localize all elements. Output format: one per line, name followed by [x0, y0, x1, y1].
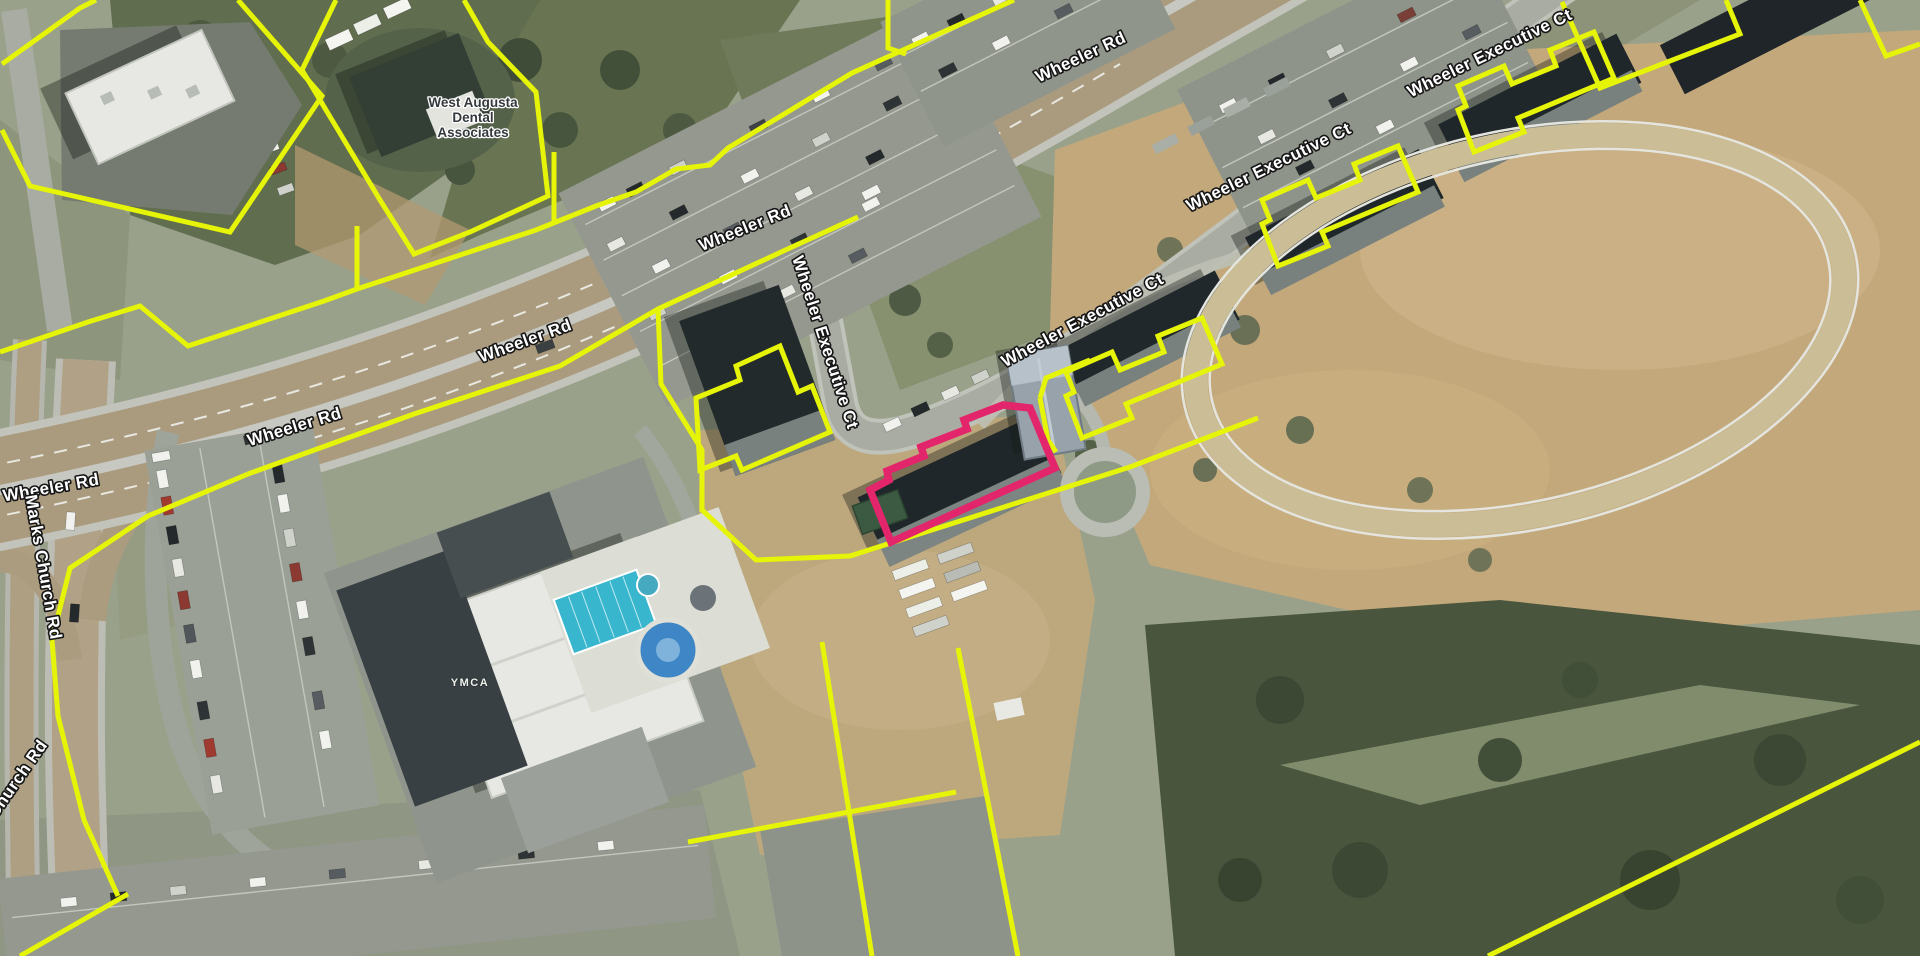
poi-label-dental-line2: Dental: [452, 110, 493, 125]
poi-label-ymca: YMCA: [451, 677, 489, 689]
map-stage[interactable]: Wheeler RdWheeler RdWheeler RdWheeler Rd…: [0, 0, 1920, 956]
poi-label-dental-line1: West Augusta: [428, 95, 518, 110]
map-canvas[interactable]: Wheeler RdWheeler RdWheeler RdWheeler Rd…: [0, 0, 1920, 956]
poi-label-dental-line3: Associates: [437, 125, 508, 140]
